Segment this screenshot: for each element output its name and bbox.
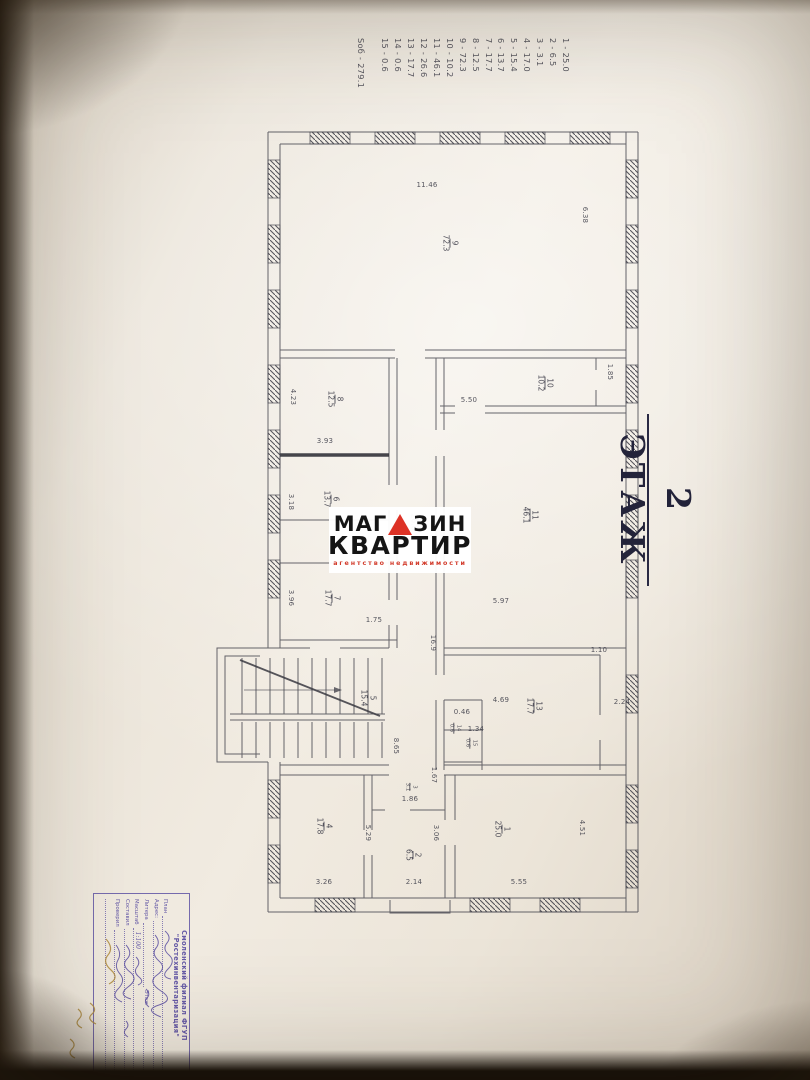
room-label-15: 150.6 <box>464 738 477 749</box>
dimension-label: 1.86 <box>402 795 418 803</box>
room-label-14: 140.6 <box>448 723 461 734</box>
room-area: 25.0 <box>494 821 502 838</box>
dimension-label: 5.55 <box>511 878 527 886</box>
dimension-label: 1.34 <box>468 725 484 733</box>
dimension-label: 1.10 <box>591 646 607 654</box>
room-number: 13 <box>534 699 543 713</box>
room-area: 6.5 <box>405 849 413 861</box>
room-number: 11 <box>530 508 539 522</box>
dimension-label: 4.23 <box>289 389 297 405</box>
room-area: 12.5 <box>327 391 335 408</box>
room-number: 8 <box>335 395 344 404</box>
legend-item: 13 - 17.7 <box>404 38 417 122</box>
dimension-label: 1.85 <box>606 364 614 380</box>
room-number: 15 <box>470 738 477 749</box>
room-label-9: 972.3 <box>442 235 459 252</box>
dimension-label: 5.29 <box>364 825 372 841</box>
room-label-4: 417.8 <box>316 818 333 835</box>
room-label-5: 515.4 <box>360 690 377 707</box>
room-area: 13.7 <box>323 491 331 508</box>
dimension-label: 4.51 <box>578 820 586 836</box>
dimension-label: 1.67 <box>430 767 438 783</box>
dimension-label: 6.38 <box>581 207 589 223</box>
room-area: 17.7 <box>526 698 534 715</box>
room-area: 10.2 <box>537 375 545 392</box>
room-label-11: 1146.1 <box>522 507 539 524</box>
legend-item: 3 - 3.1 <box>533 38 546 122</box>
legend-item: 15 - 0.6 <box>378 38 391 122</box>
watermark-tagline: агентство недвижимости <box>333 560 467 567</box>
room-label-6: 613.7 <box>323 491 340 508</box>
room-number: 5 <box>368 694 377 703</box>
dimension-label: 3.06 <box>432 825 440 841</box>
legend-item: 2 - 6.5 <box>546 38 559 122</box>
room-area: 0.6 <box>448 724 454 732</box>
room-number: 10 <box>545 376 554 390</box>
room-number: 6 <box>331 495 340 504</box>
dimension-label: 3.96 <box>287 590 295 606</box>
legend-item: 8 - 12.5 <box>469 38 482 122</box>
room-number: 14 <box>454 723 461 734</box>
room-area-legend: 1 - 25.02 - 6.53 - 3.14 - 17.05 - 15.46 … <box>355 38 573 122</box>
legend-item: 1 - 25.0 <box>559 38 572 122</box>
legend-item: 10 - 10.2 <box>443 38 456 122</box>
room-label-10: 1010.2 <box>537 375 554 392</box>
legend-item: 14 - 0.6 <box>391 38 404 122</box>
room-number: 3 <box>410 783 417 790</box>
legend-item: 4 - 17.0 <box>520 38 533 122</box>
agency-watermark: МАГ ЗИН КВАРТИР агентство недвижимости <box>329 507 471 573</box>
dimension-label: 11.46 <box>416 181 437 189</box>
watermark-logo-line2: КВАРТИР <box>328 534 472 558</box>
room-label-8: 812.5 <box>327 391 344 408</box>
legend-item: 11 - 46.1 <box>430 38 443 122</box>
dimension-label: 3.93 <box>317 437 333 445</box>
dimension-label: 1.75 <box>366 616 382 624</box>
dimension-label: 4.69 <box>493 696 509 704</box>
room-area: 15.4 <box>360 690 368 707</box>
room-number: 2 <box>413 851 422 860</box>
legend-item: 6 - 13.7 <box>495 38 508 122</box>
dimension-label: 2.14 <box>406 878 422 886</box>
dimension-label: 8.65 <box>392 738 400 754</box>
room-area: 46.1 <box>522 507 530 524</box>
room-area: 0.6 <box>464 739 470 747</box>
room-area: 3.1 <box>404 783 410 791</box>
room-area: 72.3 <box>442 235 450 252</box>
dimension-label: 3.18 <box>287 494 295 510</box>
dimension-label: 5.50 <box>461 396 477 404</box>
room-number: 1 <box>502 825 511 834</box>
dimension-label: 3.26 <box>316 878 332 886</box>
room-label-13: 1317.7 <box>526 698 543 715</box>
room-number: 9 <box>450 239 459 248</box>
room-area: 17.7 <box>324 590 332 607</box>
dimension-label: 16.9 <box>429 635 437 651</box>
room-label-3: 33.1 <box>404 783 417 791</box>
legend-item: 7 - 17.7 <box>482 38 495 122</box>
handwriting-scribbles <box>50 893 190 1078</box>
dimension-label: 2.24 <box>614 698 630 706</box>
floorplan-photo: 1 - 25.02 - 6.53 - 3.14 - 17.05 - 15.46 … <box>0 0 810 1080</box>
floor-title: 2 ЭТАЖ <box>647 414 701 586</box>
room-label-1: 125.0 <box>494 821 511 838</box>
dimension-label: 0.46 <box>454 708 470 716</box>
bti-stamp: Смоленский филиал ФГУП "Ростехинвентариз… <box>93 893 190 1078</box>
room-number: 7 <box>332 594 341 603</box>
legend-item: 5 - 15.4 <box>507 38 520 122</box>
legend-total: Sоб - 279.1 <box>355 38 368 122</box>
legend-item: 9 - 72.3 <box>456 38 469 122</box>
room-area: 17.8 <box>316 818 324 835</box>
dimension-label: 5.97 <box>493 597 509 605</box>
room-label-7: 717.7 <box>324 590 341 607</box>
room-number: 4 <box>324 822 333 831</box>
room-label-2: 26.5 <box>405 849 422 861</box>
legend-item: 12 - 26.6 <box>417 38 430 122</box>
